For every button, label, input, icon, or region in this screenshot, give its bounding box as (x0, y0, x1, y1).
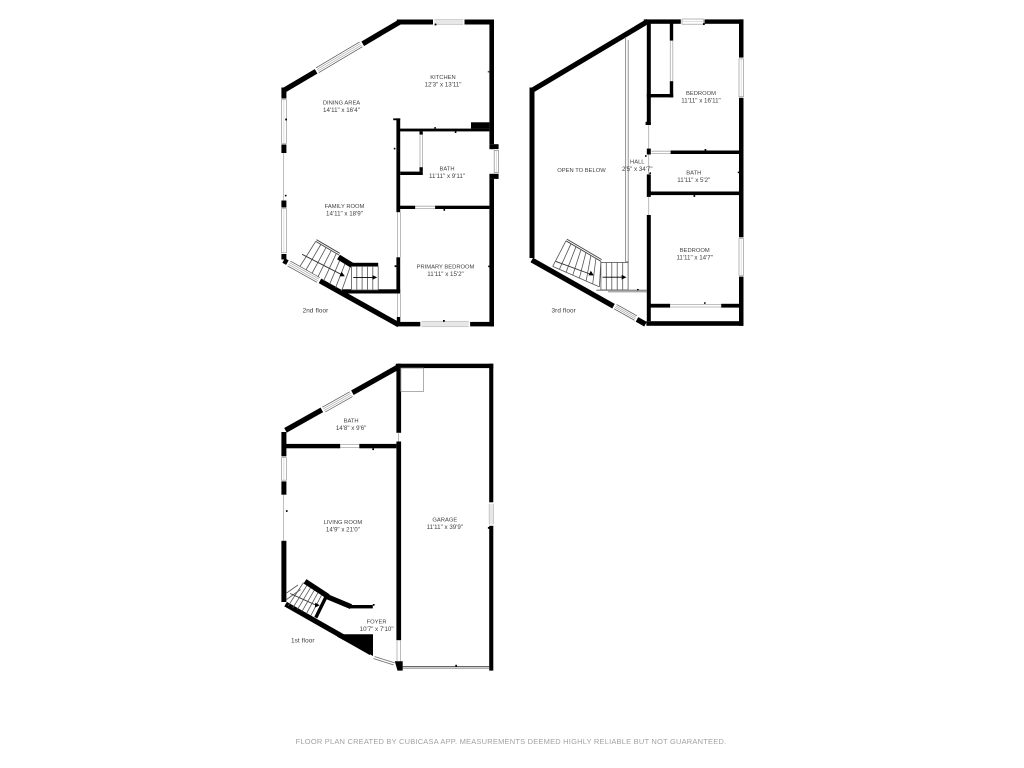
svg-text:11'11" x 15'2": 11'11" x 15'2" (427, 271, 463, 278)
svg-text:GARAGE: GARAGE (432, 517, 457, 523)
svg-text:BEDROOM: BEDROOM (686, 91, 716, 97)
svg-text:14'11" x 16'4": 14'11" x 16'4" (323, 107, 360, 114)
svg-text:LIVING ROOM: LIVING ROOM (324, 520, 363, 526)
svg-text:12'3" x 13'11": 12'3" x 13'11" (425, 81, 462, 88)
svg-text:11'11" x 39'9": 11'11" x 39'9" (427, 524, 463, 531)
svg-text:PRIMARY BEDROOM: PRIMARY BEDROOM (417, 264, 475, 270)
svg-text:3rd floor: 3rd floor (552, 308, 577, 315)
svg-text:14'8" x 9'6": 14'8" x 9'6" (336, 425, 367, 432)
svg-text:FAMILY ROOM: FAMILY ROOM (325, 204, 365, 210)
svg-text:1st floor: 1st floor (291, 637, 315, 644)
svg-text:11'11" x 5'2": 11'11" x 5'2" (677, 177, 710, 184)
svg-text:FLOOR PLAN CREATED BY CUBICASA: FLOOR PLAN CREATED BY CUBICASA APP. MEAS… (296, 737, 727, 746)
svg-text:BATH: BATH (686, 171, 701, 177)
svg-text:11'11" x 14'7": 11'11" x 14'7" (676, 254, 712, 261)
svg-text:DINING AREA: DINING AREA (323, 101, 360, 107)
svg-text:14'9" x 21'0": 14'9" x 21'0" (326, 527, 360, 534)
svg-text:BEDROOM: BEDROOM (680, 248, 710, 254)
svg-text:2nd floor: 2nd floor (303, 308, 330, 315)
svg-text:FOYER: FOYER (367, 619, 387, 625)
svg-text:14'11" x 18'9": 14'11" x 18'9" (326, 211, 363, 218)
svg-text:11'11" x 16'11": 11'11" x 16'11" (681, 98, 720, 105)
svg-text:OPEN TO BELOW: OPEN TO BELOW (557, 168, 606, 174)
svg-text:BATH: BATH (344, 418, 359, 424)
svg-text:HALL: HALL (630, 160, 645, 166)
svg-text:KITCHEN: KITCHEN (430, 75, 455, 81)
svg-text:2'5" x 34'7": 2'5" x 34'7" (622, 166, 653, 173)
svg-text:BATH: BATH (439, 167, 454, 173)
svg-text:11'11" x 9'11": 11'11" x 9'11" (429, 173, 465, 180)
svg-text:10'7" x 7'10": 10'7" x 7'10" (360, 626, 394, 633)
